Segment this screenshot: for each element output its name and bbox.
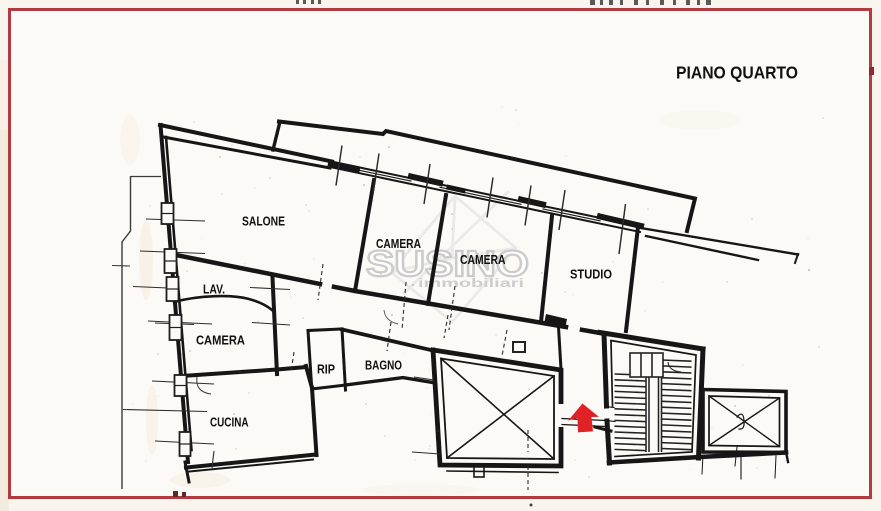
svg-text:BAGNO: BAGNO (365, 358, 402, 373)
svg-text:STUDIO: STUDIO (570, 267, 612, 282)
svg-text:SALONE: SALONE (242, 214, 285, 229)
svg-text:RIP: RIP (317, 363, 335, 377)
svg-text:CUCINA: CUCINA (210, 415, 249, 430)
svg-text:LAV.: LAV. (203, 283, 225, 297)
svg-text:CAMERA: CAMERA (460, 252, 506, 267)
svg-text:CAMERA: CAMERA (196, 333, 246, 348)
svg-text:PIANO QUARTO: PIANO QUARTO (676, 63, 798, 83)
svg-text:CAMERA: CAMERA (376, 236, 421, 251)
